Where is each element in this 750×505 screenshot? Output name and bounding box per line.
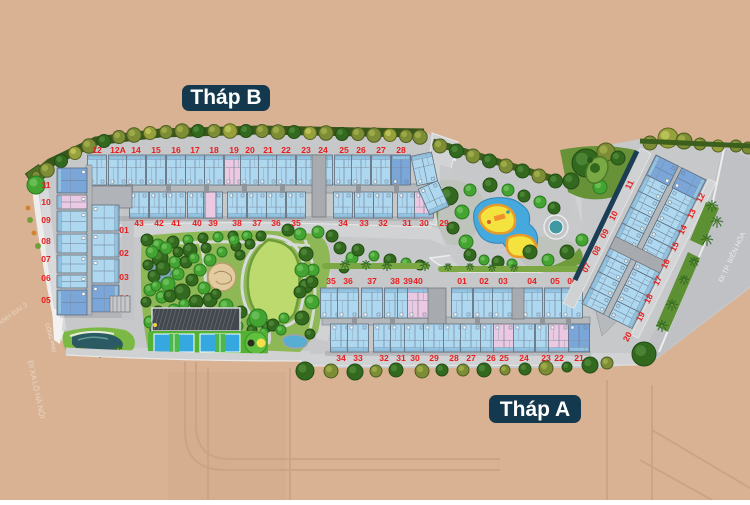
svg-text:16: 16	[171, 145, 181, 155]
svg-text:24: 24	[519, 353, 529, 363]
svg-text:32: 32	[378, 218, 388, 228]
svg-text:06: 06	[41, 273, 51, 283]
svg-text:41: 41	[171, 218, 181, 228]
svg-text:08: 08	[41, 236, 51, 246]
svg-text:04: 04	[527, 276, 537, 286]
svg-text:40: 40	[192, 218, 202, 228]
svg-text:40: 40	[413, 276, 423, 286]
svg-text:17: 17	[190, 145, 200, 155]
svg-text:39: 39	[403, 276, 413, 286]
svg-text:10: 10	[41, 197, 51, 207]
svg-text:09: 09	[41, 215, 51, 225]
svg-text:43: 43	[134, 218, 144, 228]
svg-text:19: 19	[229, 145, 239, 155]
svg-text:22: 22	[281, 145, 291, 155]
svg-text:18: 18	[209, 145, 219, 155]
svg-text:34: 34	[338, 218, 348, 228]
svg-text:35: 35	[326, 276, 336, 286]
svg-text:36: 36	[343, 276, 353, 286]
svg-text:32: 32	[379, 353, 389, 363]
svg-text:33: 33	[353, 353, 363, 363]
svg-text:07: 07	[41, 254, 51, 264]
svg-text:28: 28	[449, 353, 459, 363]
svg-text:Tháp A: Tháp A	[500, 398, 570, 421]
svg-text:29: 29	[439, 218, 449, 228]
svg-text:Tháp B: Tháp B	[190, 86, 261, 109]
svg-text:29: 29	[429, 353, 439, 363]
svg-text:42: 42	[154, 218, 164, 228]
svg-text:27: 27	[466, 353, 476, 363]
svg-text:15: 15	[151, 145, 161, 155]
svg-text:28: 28	[396, 145, 406, 155]
svg-text:02: 02	[119, 248, 129, 258]
svg-text:12: 12	[92, 145, 102, 155]
svg-text:03: 03	[119, 272, 129, 282]
svg-text:03: 03	[498, 276, 508, 286]
svg-text:21: 21	[263, 145, 273, 155]
svg-text:27: 27	[376, 145, 386, 155]
svg-text:05: 05	[41, 295, 51, 305]
svg-text:05: 05	[550, 276, 560, 286]
svg-text:26: 26	[356, 145, 366, 155]
svg-text:38: 38	[390, 276, 400, 286]
svg-text:39: 39	[208, 218, 218, 228]
svg-text:20: 20	[245, 145, 255, 155]
svg-text:01: 01	[119, 225, 129, 235]
svg-text:23: 23	[301, 145, 311, 155]
svg-text:24: 24	[318, 145, 328, 155]
svg-text:33: 33	[359, 218, 369, 228]
svg-text:22: 22	[554, 353, 564, 363]
svg-text:30: 30	[419, 218, 429, 228]
svg-text:25: 25	[499, 353, 509, 363]
svg-text:38: 38	[232, 218, 242, 228]
svg-text:37: 37	[367, 276, 377, 286]
svg-text:30: 30	[410, 353, 420, 363]
svg-text:37: 37	[252, 218, 262, 228]
svg-text:11: 11	[41, 180, 50, 190]
svg-text:31: 31	[402, 218, 412, 228]
svg-text:12A: 12A	[110, 145, 126, 155]
svg-text:25: 25	[339, 145, 349, 155]
svg-text:35: 35	[291, 218, 301, 228]
svg-text:31: 31	[396, 353, 406, 363]
svg-text:14: 14	[131, 145, 141, 155]
svg-text:36: 36	[271, 218, 281, 228]
svg-text:01: 01	[457, 276, 467, 286]
svg-text:34: 34	[336, 353, 346, 363]
svg-text:26: 26	[486, 353, 496, 363]
svg-text:02: 02	[479, 276, 489, 286]
